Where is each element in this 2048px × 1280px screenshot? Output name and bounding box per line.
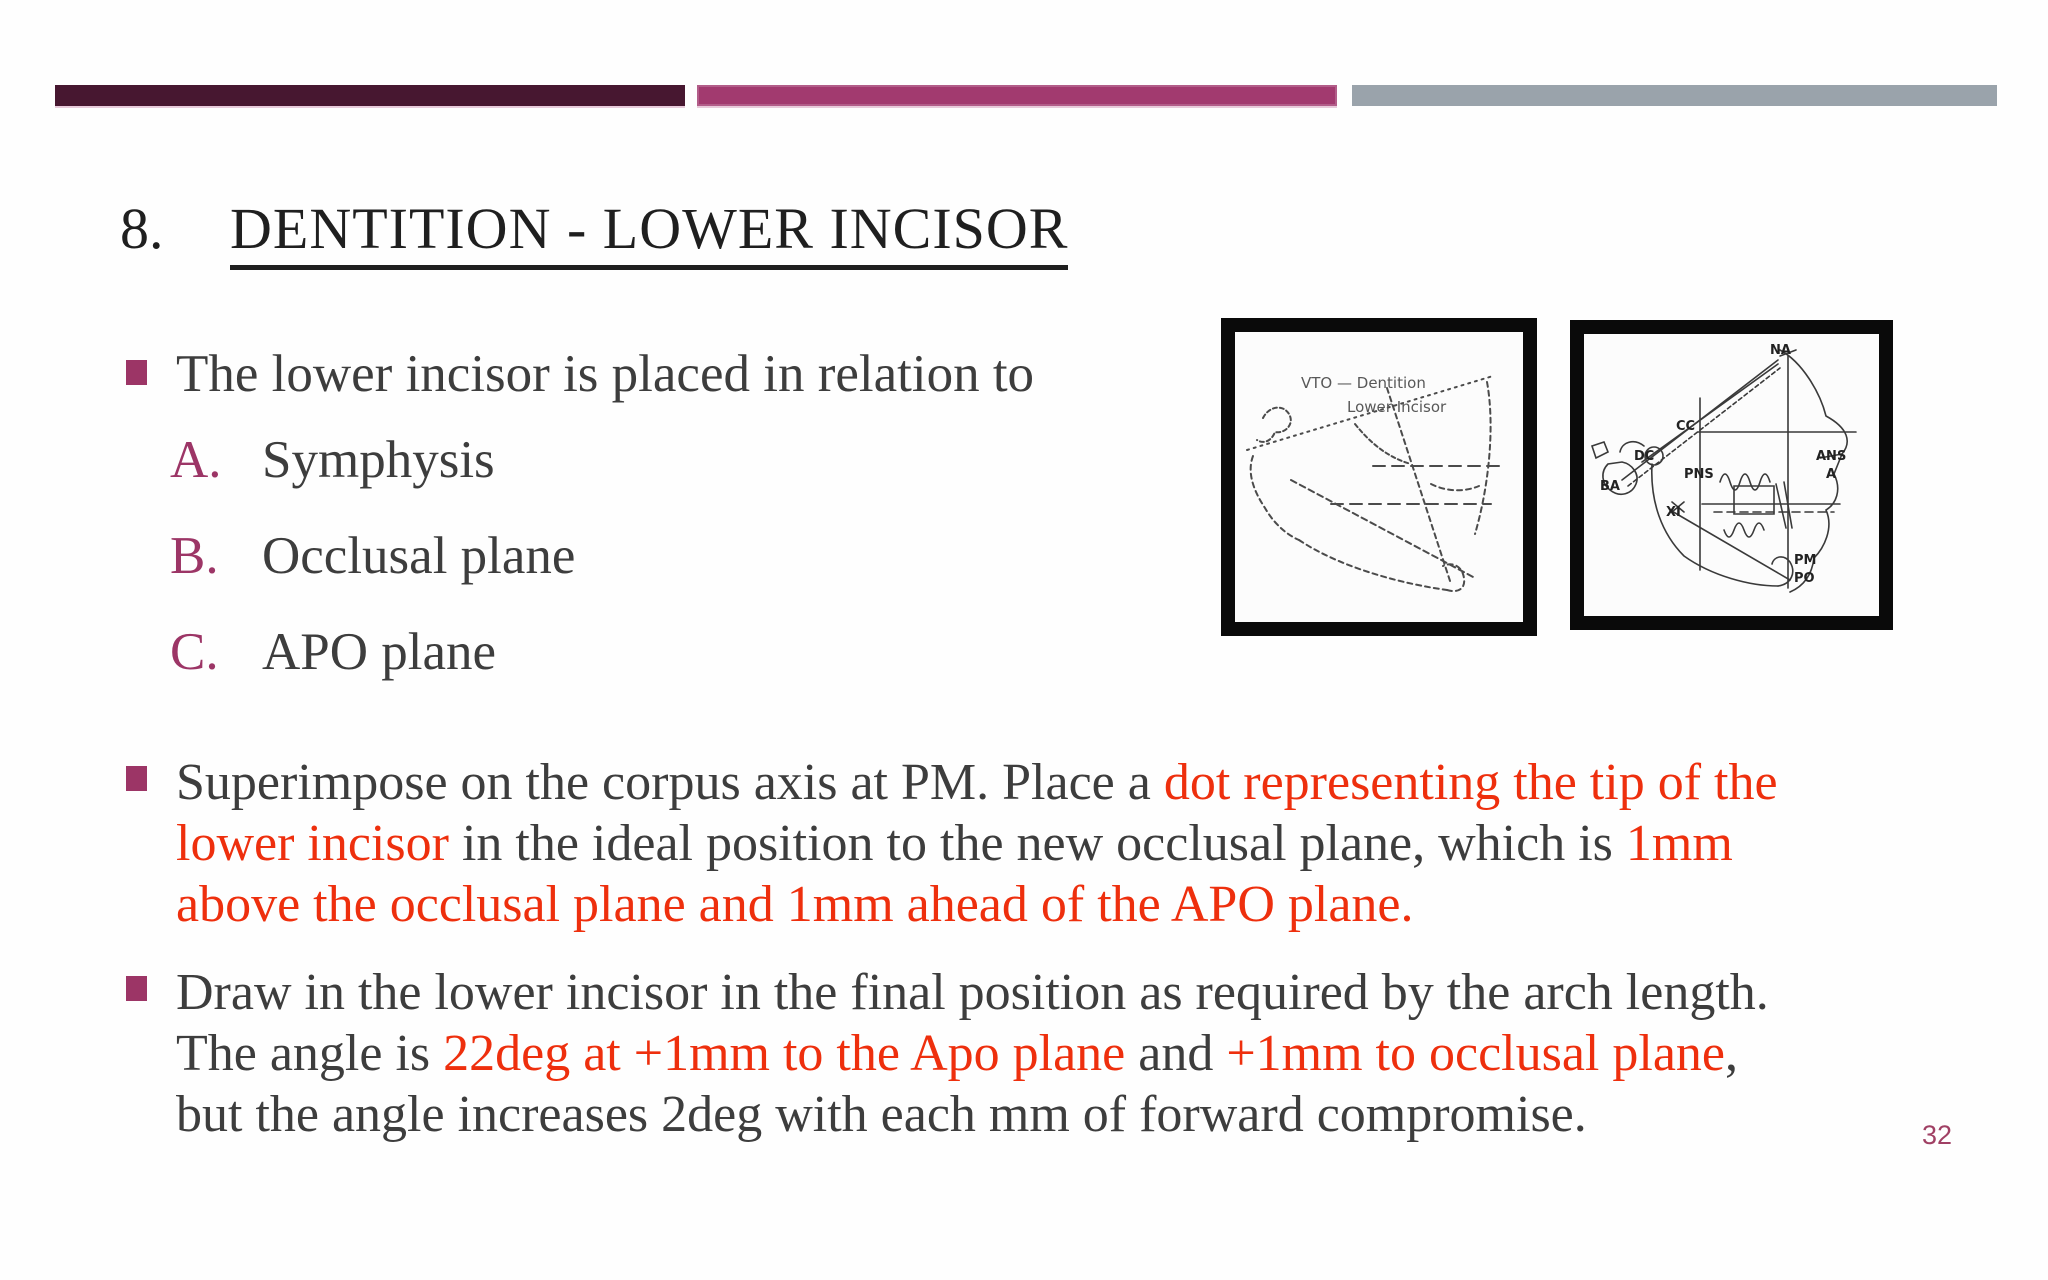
draw-bullet: Draw in the lower incisor in the final p…	[126, 962, 1769, 1145]
list-letter: C.	[170, 622, 262, 682]
landmark-label-pm: PM	[1794, 553, 1816, 568]
bullet-square-icon	[126, 976, 147, 1001]
vto-caption-line1: VTO — Dentition	[1301, 374, 1426, 392]
accent-bar-dark	[55, 85, 685, 106]
list-letter: B.	[170, 526, 262, 586]
text-segment: The angle is	[176, 1025, 443, 1082]
text-segment-highlight: lower incisor	[176, 815, 449, 872]
text-segment: and	[1125, 1025, 1226, 1082]
text-line: above the occlusal plane and 1mm ahead o…	[176, 874, 1778, 935]
list-label: Occlusal plane	[262, 526, 575, 586]
landmark-label-po: PO	[1794, 571, 1815, 586]
page-number: 32	[1922, 1120, 1952, 1151]
list-item-symphysis: A.Symphysis	[170, 430, 575, 490]
cephalometric-tracing-vto-figure: VTO — Dentition Lower Incisor	[1221, 318, 1537, 636]
accent-bar-gray	[1352, 85, 1997, 106]
text-line: but the angle increases 2deg with each m…	[176, 1084, 1769, 1145]
vto-tracing-drawing: VTO — Dentition Lower Incisor	[1235, 332, 1523, 622]
intro-bullet-text: The lower incisor is placed in relation …	[176, 344, 1034, 404]
text-segment-highlight: above the occlusal plane and 1mm ahead o…	[176, 876, 1414, 933]
landmark-label-ba: BA	[1600, 479, 1620, 494]
landmark-label-pns: PNS	[1684, 467, 1714, 482]
text-segment: ,	[1725, 1025, 1738, 1082]
text-line: The angle is 22deg at +1mm to the Apo pl…	[176, 1023, 1769, 1084]
list-item-occlusal-plane: B.Occlusal plane	[170, 526, 575, 586]
draw-bullet-text: Draw in the lower incisor in the final p…	[176, 962, 1769, 1145]
text-segment-highlight: 1mm	[1626, 815, 1733, 872]
page-title: DENTITION - LOWER INCISOR	[230, 196, 1068, 270]
text-line: lower incisor in the ideal position to t…	[176, 813, 1778, 874]
bullet-square-icon	[126, 766, 147, 791]
landmarks-tracing-drawing: NA CC DC BA PNS XI ANS A PM PO	[1584, 334, 1879, 616]
text-segment: in the ideal position to the new occlusa…	[449, 815, 1626, 872]
landmark-label-dc: DC	[1634, 449, 1654, 464]
text-segment: Draw in the lower incisor in the final p…	[176, 964, 1769, 1021]
accent-bar-magenta	[697, 85, 1337, 106]
list-label: Symphysis	[262, 430, 495, 490]
slide-heading: 8. DENTITION - LOWER INCISOR	[120, 196, 1068, 270]
list-label: APO plane	[262, 622, 496, 682]
vto-caption-line2: Lower Incisor	[1347, 398, 1447, 416]
text-segment: Superimpose on the corpus axis at PM. Pl…	[176, 754, 1164, 811]
heading-number: 8.	[120, 196, 230, 270]
text-line: Draw in the lower incisor in the final p…	[176, 962, 1769, 1023]
text-segment: but the angle increases 2deg with each m…	[176, 1086, 1587, 1143]
list-item-apo-plane: C.APO plane	[170, 622, 575, 682]
landmark-label-ans: ANS	[1816, 449, 1846, 464]
relation-list: A.Symphysis B.Occlusal plane C.APO plane	[170, 430, 575, 718]
landmark-label-a: A	[1826, 467, 1836, 482]
text-segment-highlight: dot representing the tip of the	[1164, 754, 1778, 811]
landmark-label-cc: CC	[1676, 419, 1695, 434]
text-segment-highlight: 22deg at +1mm to the Apo plane	[443, 1025, 1125, 1082]
text-line: Superimpose on the corpus axis at PM. Pl…	[176, 752, 1778, 813]
intro-bullet: The lower incisor is placed in relation …	[126, 344, 1034, 404]
superimpose-bullet-text: Superimpose on the corpus axis at PM. Pl…	[176, 752, 1778, 935]
superimpose-bullet: Superimpose on the corpus axis at PM. Pl…	[126, 752, 1778, 935]
landmark-label-na: NA	[1770, 343, 1791, 358]
bullet-square-icon	[126, 360, 147, 385]
list-letter: A.	[170, 430, 262, 490]
landmark-label-xi: XI	[1666, 505, 1681, 520]
cephalometric-landmarks-figure: NA CC DC BA PNS XI ANS A PM PO	[1570, 320, 1893, 630]
text-segment-highlight: +1mm to occlusal plane	[1226, 1025, 1725, 1082]
slide: 8. DENTITION - LOWER INCISOR The lower i…	[0, 0, 2048, 1280]
